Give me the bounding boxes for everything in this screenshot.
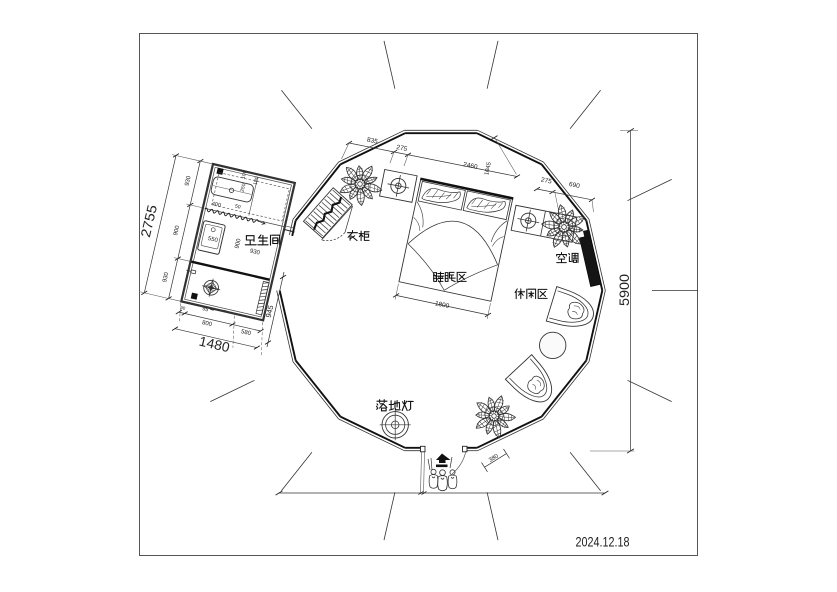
svg-text:5900: 5900 bbox=[617, 274, 632, 306]
svg-text:2024.12.18: 2024.12.18 bbox=[576, 534, 630, 550]
